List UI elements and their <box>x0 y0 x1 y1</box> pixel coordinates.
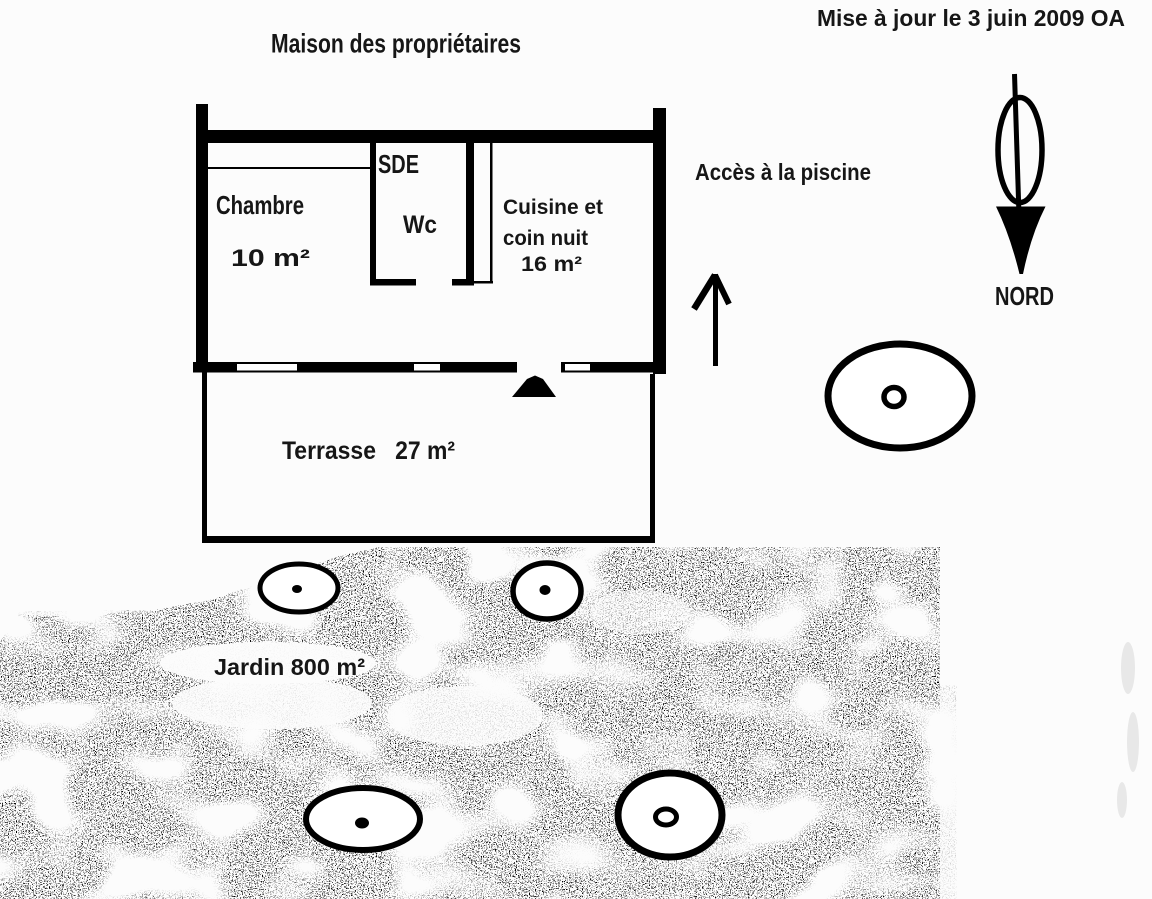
svg-text:Terrasse 27 m²: Terrasse 27 m² <box>282 437 455 465</box>
svg-text:Cuisine et: Cuisine et <box>503 196 603 219</box>
svg-text:10 m²: 10 m² <box>231 245 310 272</box>
svg-text:Wc: Wc <box>403 211 437 239</box>
svg-text:Chambre: Chambre <box>216 190 304 220</box>
svg-text:coin nuit: coin nuit <box>503 227 588 250</box>
svg-text:NORD: NORD <box>995 281 1054 311</box>
svg-text:16 m²: 16 m² <box>521 253 582 276</box>
svg-text:SDE: SDE <box>378 149 419 179</box>
svg-text:Jardin 800 m²: Jardin 800 m² <box>214 654 365 680</box>
svg-text:Mise à jour le 3 juin 2009 OA: Mise à jour le 3 juin 2009 OA <box>817 5 1125 31</box>
svg-text:Accès à la piscine: Accès à la piscine <box>695 159 871 185</box>
svg-text:Maison des propriétaires: Maison des propriétaires <box>271 29 521 59</box>
